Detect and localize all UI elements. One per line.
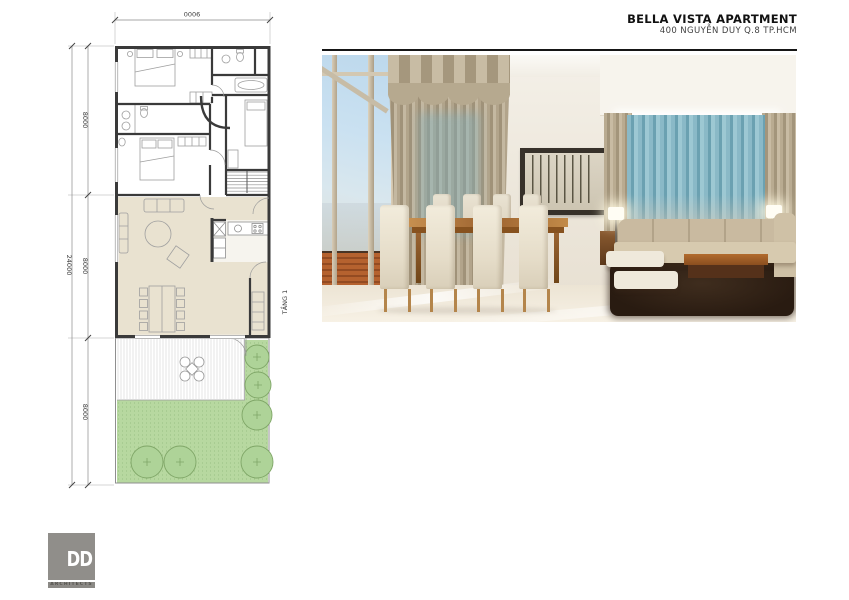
- firm-logo: DD: [48, 533, 95, 580]
- stove: [252, 224, 263, 234]
- sink: [122, 111, 130, 119]
- ottoman: [614, 271, 678, 289]
- ottoman: [606, 251, 664, 267]
- table-leg: [416, 233, 421, 283]
- dining-chair-near: [426, 205, 455, 289]
- dim-label-top-width: 9000: [184, 10, 201, 18]
- dim-label-segment-2: 8000: [81, 258, 89, 275]
- project-title: BELLA VISTA APARTMENT: [627, 13, 797, 26]
- logo-caption: ARCHITECTS: [48, 582, 95, 588]
- dim-label-total-height: 24000: [65, 255, 73, 276]
- valance-swag: [418, 83, 449, 105]
- toilet: [119, 138, 125, 146]
- logo-monogram: DD: [66, 547, 92, 571]
- dim-label-segment-1: 8000: [81, 112, 89, 129]
- chair-legs: [477, 289, 504, 312]
- master-bed: [135, 48, 175, 86]
- project-header: BELLA VISTA APARTMENT 400 NGUYỄN DUY Q.8…: [627, 13, 797, 37]
- chair-legs: [384, 289, 411, 312]
- coffee-table-top: [684, 254, 768, 265]
- presentation-sheet: BELLA VISTA APARTMENT 400 NGUYỄN DUY Q.8…: [0, 0, 849, 600]
- toilet: [237, 53, 244, 62]
- desk: [228, 150, 238, 168]
- dining-chair-near: [519, 205, 548, 289]
- interior-rendering-photo: [322, 55, 796, 322]
- sink: [222, 55, 230, 63]
- table-lamp-left: [608, 207, 624, 220]
- alcove-ceiling: [600, 55, 796, 116]
- valance-swag: [388, 83, 419, 105]
- chair-legs: [430, 289, 457, 312]
- dining-chair-near: [473, 205, 502, 289]
- window-mullion: [332, 55, 337, 287]
- coffee-table-body: [688, 265, 764, 278]
- valance-swag: [478, 83, 510, 105]
- header-rule-line: [322, 49, 797, 51]
- bedroom-furniture: [127, 48, 267, 180]
- window-mullion: [368, 55, 374, 287]
- dining-chair-near: [380, 205, 409, 289]
- chair-legs: [523, 289, 550, 312]
- kitchen-sink: [235, 225, 242, 232]
- valance-swag: [448, 83, 479, 105]
- dim-label-segment-3: 8000: [81, 404, 89, 421]
- single-bed: [245, 100, 267, 146]
- floor-plan: 9000 24000 8000 8000 8000: [40, 0, 310, 520]
- sink: [122, 122, 130, 130]
- bedside-lamp: [127, 51, 132, 56]
- project-address: 400 NGUYỄN DUY Q.8 TP.HCM: [627, 26, 797, 37]
- bedside-lamp: [177, 51, 182, 56]
- floor-label: TẦNG 1: [279, 290, 289, 316]
- table-leg: [554, 233, 559, 283]
